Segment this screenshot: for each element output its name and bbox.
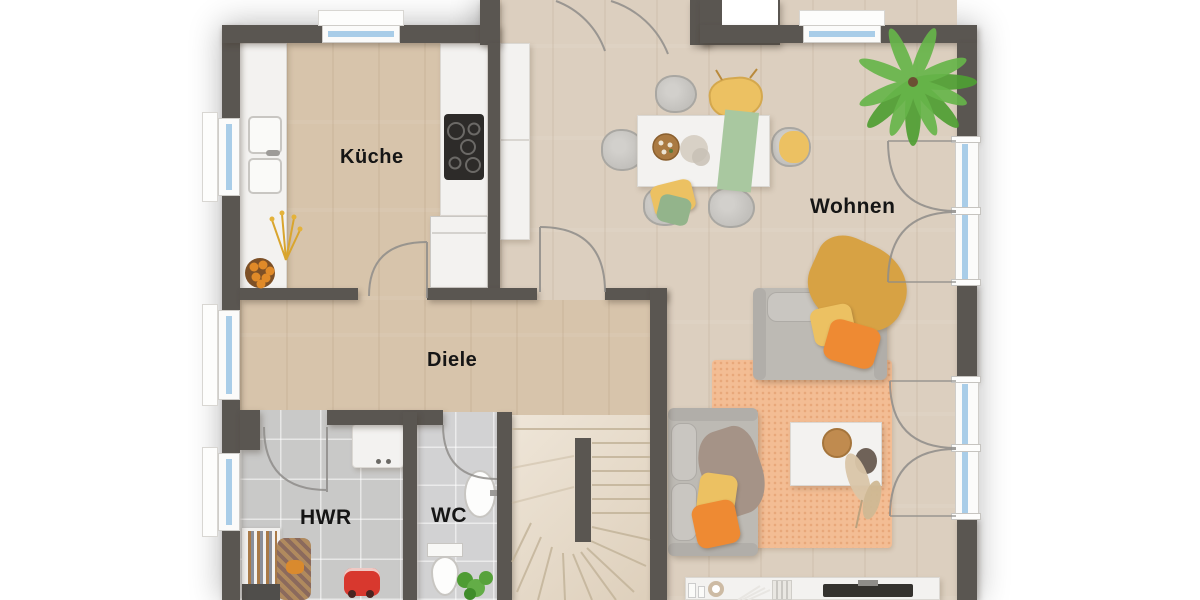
wall-hwr-top <box>327 410 443 425</box>
kitchen-top-window-glass <box>328 31 394 37</box>
hwr-window-glass <box>226 459 232 525</box>
room-label-diele: Diele <box>427 349 477 372</box>
room-label-kueche: Küche <box>340 146 404 169</box>
candle <box>698 586 705 598</box>
tall-cabinet <box>500 43 530 240</box>
book-stack <box>772 580 792 600</box>
door-handle <box>951 376 981 383</box>
heater-dial <box>376 459 381 464</box>
tall-cabinet-seam <box>501 139 529 141</box>
door-handle <box>951 207 981 215</box>
kitchen-sink-basin-bottom <box>248 158 282 194</box>
kitchen-window-glass <box>226 124 232 190</box>
wall-vestibule-left <box>480 0 500 45</box>
window-sill <box>202 112 218 202</box>
diele-window-glass <box>226 316 232 394</box>
window-sill <box>202 447 218 537</box>
tv-stand <box>858 580 878 586</box>
entry-niche <box>722 0 778 28</box>
wall-diele-top-a <box>240 288 358 300</box>
sofa-arm <box>753 288 766 380</box>
dining-chair <box>708 187 755 228</box>
door-handle <box>951 279 981 286</box>
window-sill <box>799 10 885 26</box>
wall-kitchen-right <box>488 43 500 288</box>
sofa-arm <box>668 408 758 421</box>
tray <box>822 428 852 458</box>
heater-dial <box>386 459 391 464</box>
wohnen-top-window-glass <box>809 31 875 37</box>
floor-plan: Küche Wohnen Diele HWR WC <box>0 0 1200 600</box>
pillow-orange <box>690 498 742 550</box>
vase <box>855 448 877 474</box>
fridge-seam <box>432 232 486 234</box>
wall-diele-top-b <box>427 288 537 300</box>
cooktop <box>444 114 484 180</box>
window-sill <box>318 10 404 26</box>
sofa-back-cushion <box>671 423 697 481</box>
room-label-hwr: HWR <box>300 506 352 530</box>
kitchen-sink-basin-top <box>248 116 282 154</box>
door-handle <box>951 444 981 452</box>
toilet-tank <box>427 543 463 557</box>
wall-hwr-wc-divider <box>403 412 417 600</box>
candle <box>688 583 696 598</box>
room-label-wc: WC <box>431 504 467 528</box>
deco-ring <box>708 581 724 597</box>
wall-right-middle <box>957 283 977 380</box>
window-sill <box>202 304 218 406</box>
laundry-orange-cloth <box>286 560 304 574</box>
floor-stairs <box>512 415 650 600</box>
dark-mat <box>242 584 280 600</box>
room-label-wohnen: Wohnen <box>810 195 895 219</box>
kitchen-faucet <box>266 150 280 156</box>
wall-hwr-pier <box>240 410 260 450</box>
dining-chair <box>655 75 697 113</box>
wall-right-lower <box>957 517 977 600</box>
door-handle <box>951 513 981 520</box>
dining-chair-yellow-cushion <box>779 131 809 163</box>
wall-center-vertical <box>650 288 667 600</box>
door-handle <box>951 136 981 143</box>
fridge <box>430 216 488 288</box>
toy-car <box>344 568 380 596</box>
wall-right-upper <box>957 43 977 140</box>
wall-wc-right <box>497 412 512 600</box>
